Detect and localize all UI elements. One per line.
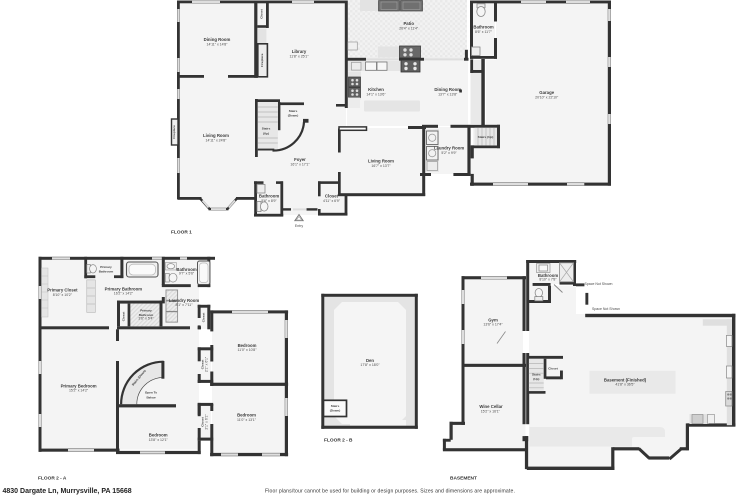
svg-text:Primary Bathroom: Primary Bathroom: [105, 286, 143, 291]
svg-text:2'1" x 6'1": 2'1" x 6'1": [205, 414, 209, 430]
svg-text:Bathroom: Bathroom: [259, 194, 279, 199]
svg-text:FLOOR 2 - B: FLOOR 2 - B: [324, 437, 353, 443]
svg-text:13'7" x 13'8": 13'7" x 13'8": [438, 92, 458, 96]
svg-text:Living Room: Living Room: [203, 133, 229, 138]
svg-text:8'1" x 7'11": 8'1" x 7'11": [176, 303, 194, 307]
svg-text:Gym: Gym: [488, 317, 498, 322]
svg-text:3'6" x 5'4": 3'6" x 5'4": [138, 316, 154, 320]
svg-text:11'0" x 13'1": 11'0" x 13'1": [237, 418, 257, 422]
svg-text:26'4" x 11'4": 26'4" x 11'4": [399, 27, 419, 31]
svg-text:11'0" x 10'8": 11'0" x 10'8": [238, 348, 258, 352]
svg-text:15'2" x 14'2": 15'2" x 14'2": [69, 389, 89, 393]
svg-text:BASEMENT: BASEMENT: [450, 476, 477, 482]
svg-text:Fireplace: Fireplace: [172, 125, 176, 139]
svg-text:Closet: Closet: [122, 312, 126, 321]
svg-text:41'8" x 36'5": 41'8" x 36'5": [615, 383, 635, 387]
svg-text:(Up): (Up): [533, 377, 539, 381]
svg-text:15'2" x 16'1": 15'2" x 16'1": [481, 409, 501, 413]
svg-text:8'6" x 11'7": 8'6" x 11'7": [475, 30, 493, 34]
svg-text:17'8" x 18'0": 17'8" x 18'0": [360, 363, 380, 367]
svg-text:(Down): (Down): [288, 114, 298, 118]
svg-text:8'10" x 10'2": 8'10" x 10'2": [53, 293, 73, 297]
svg-text:Bedroom: Bedroom: [238, 343, 257, 348]
svg-text:Closet: Closet: [325, 194, 339, 199]
svg-text:Kitchen: Kitchen: [368, 87, 384, 92]
svg-text:Bedroom: Bedroom: [149, 433, 168, 438]
svg-text:Closet: Closet: [201, 313, 205, 322]
svg-text:Library: Library: [292, 49, 307, 54]
svg-text:2'1" x 6'1": 2'1" x 6'1": [205, 356, 209, 372]
svg-text:Bathroom: Bathroom: [99, 269, 114, 273]
svg-text:16'7" x 13'7": 16'7" x 13'7": [371, 164, 391, 168]
svg-text:Entry: Entry: [295, 224, 303, 228]
svg-text:Primary Bedroom: Primary Bedroom: [61, 383, 97, 388]
svg-text:13'8" x 12'1": 13'8" x 12'1": [149, 438, 169, 442]
svg-text:9'7" x 5'6": 9'7" x 5'6": [179, 272, 195, 276]
svg-text:Closet: Closet: [260, 9, 264, 18]
svg-text:Dining Room: Dining Room: [204, 37, 231, 42]
svg-text:Den: Den: [366, 358, 374, 363]
svg-text:14'11" x 14'8": 14'11" x 14'8": [207, 43, 229, 47]
svg-text:Stairs: Stairs: [289, 109, 298, 113]
svg-text:8'10" x 7'8": 8'10" x 7'8": [539, 278, 557, 282]
svg-text:Living Room: Living Room: [368, 159, 394, 164]
svg-text:Foyer: Foyer: [294, 157, 306, 162]
svg-text:4'11" x 6'9": 4'11" x 6'9": [323, 199, 341, 203]
svg-text:(Down): (Down): [330, 409, 340, 413]
svg-text:14'1" x 13'6": 14'1" x 13'6": [366, 92, 386, 96]
svg-text:Garage: Garage: [539, 90, 554, 95]
svg-text:Floor plans/tour cannot be use: Floor plans/tour cannot be used for buil…: [265, 488, 515, 494]
svg-text:4830 Dargate Ln, Murrysville,: 4830 Dargate Ln, Murrysville, PA 15668: [3, 488, 132, 495]
svg-text:Space Not Shown: Space Not Shown: [592, 307, 620, 311]
svg-text:20'10" x 22'10": 20'10" x 22'10": [535, 95, 559, 99]
svg-text:Open To: Open To: [145, 391, 157, 395]
svg-text:16'2" x 14'2": 16'2" x 14'2": [114, 292, 134, 296]
svg-text:Stairs (Up): Stairs (Up): [478, 135, 494, 139]
svg-text:Stairs: Stairs: [331, 404, 340, 408]
svg-text:Fireplace: Fireplace: [260, 53, 264, 67]
svg-text:Basement (Finished): Basement (Finished): [604, 377, 647, 382]
svg-text:Laundry Room: Laundry Room: [434, 146, 464, 151]
svg-text:FLOOR 1: FLOOR 1: [171, 230, 192, 236]
svg-text:Stairs: Stairs: [262, 127, 271, 131]
svg-text:Primary: Primary: [100, 265, 112, 269]
svg-text:Wine Cellar: Wine Cellar: [479, 404, 503, 409]
svg-text:5'6" x 8'9": 5'6" x 8'9": [261, 199, 277, 203]
svg-text:14'11" x 24'8": 14'11" x 24'8": [206, 139, 228, 143]
svg-text:Closet: Closet: [548, 367, 557, 371]
svg-text:13'6" x 17'4": 13'6" x 17'4": [483, 323, 503, 327]
svg-text:16'1" x 17'1": 16'1" x 17'1": [290, 163, 310, 167]
svg-text:Bedroom: Bedroom: [237, 413, 256, 418]
svg-text:Bathroom: Bathroom: [473, 25, 493, 30]
svg-text:Below: Below: [146, 395, 156, 399]
svg-text:Dining Room: Dining Room: [434, 87, 461, 92]
svg-text:Primary Closet: Primary Closet: [47, 288, 78, 293]
svg-text:FLOOR 2 - A: FLOOR 2 - A: [38, 476, 67, 482]
svg-text:11'8" x 25'1": 11'8" x 25'1": [290, 55, 310, 59]
svg-text:Patio: Patio: [403, 21, 414, 26]
svg-text:(Up): (Up): [263, 131, 269, 135]
svg-text:5'2" x 9'9": 5'2" x 9'9": [441, 151, 457, 155]
svg-text:Space Not Shown: Space Not Shown: [584, 282, 612, 286]
